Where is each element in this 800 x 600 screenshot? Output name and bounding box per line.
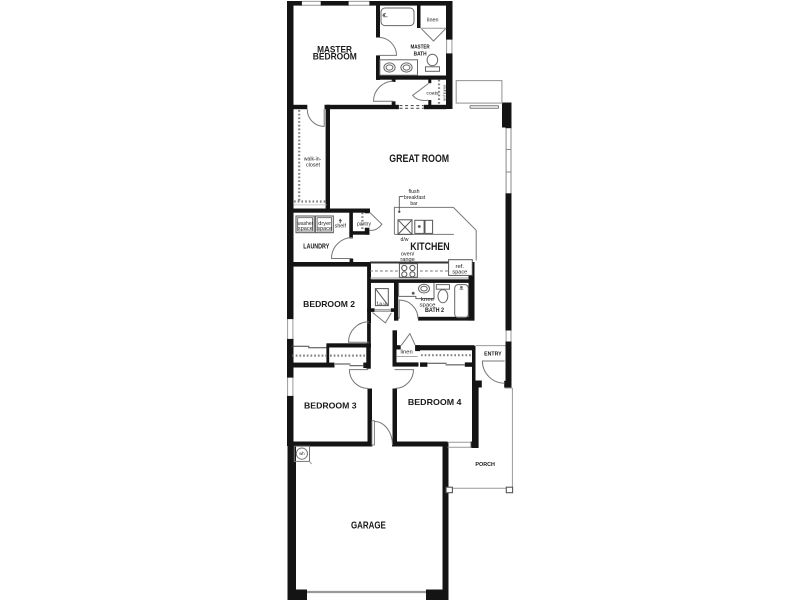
svg-text:d/w: d/w bbox=[401, 237, 409, 243]
svg-text:linen: linen bbox=[401, 350, 413, 356]
svg-text:KITCHEN: KITCHEN bbox=[410, 241, 449, 253]
svg-text:pantry: pantry bbox=[357, 221, 371, 227]
svg-text:range: range bbox=[400, 257, 415, 263]
svg-text:shelf & pole: shelf & pole bbox=[442, 85, 446, 102]
svg-text:GARAGE: GARAGE bbox=[351, 520, 386, 531]
svg-text:BATH 2: BATH 2 bbox=[425, 308, 445, 314]
svg-text:bar: bar bbox=[410, 201, 418, 207]
svg-text:BEDROOM 2: BEDROOM 2 bbox=[303, 299, 355, 309]
svg-text:closet: closet bbox=[306, 162, 321, 168]
svg-text:ENTRY: ENTRY bbox=[484, 352, 502, 358]
svg-text:wh: wh bbox=[299, 451, 305, 456]
svg-text:LAUNDRY: LAUNDRY bbox=[303, 243, 329, 250]
svg-text:space: space bbox=[452, 270, 467, 276]
svg-text:space: space bbox=[317, 226, 332, 232]
svg-text:space: space bbox=[298, 226, 313, 232]
svg-text:f.a.u.: f.a.u. bbox=[377, 301, 388, 306]
svg-text:PORCH: PORCH bbox=[475, 462, 495, 468]
svg-text:shelf: shelf bbox=[335, 224, 347, 230]
svg-text:BATH: BATH bbox=[414, 51, 427, 57]
svg-text:GREAT ROOM: GREAT ROOM bbox=[389, 153, 449, 165]
svg-text:MASTER: MASTER bbox=[410, 44, 430, 50]
svg-text:BEDROOM 4: BEDROOM 4 bbox=[408, 397, 462, 407]
svg-text:BEDROOM: BEDROOM bbox=[313, 52, 357, 62]
svg-text:BEDROOM 3: BEDROOM 3 bbox=[304, 401, 357, 411]
svg-text:linen: linen bbox=[427, 17, 439, 23]
svg-text:coats: coats bbox=[426, 90, 439, 95]
